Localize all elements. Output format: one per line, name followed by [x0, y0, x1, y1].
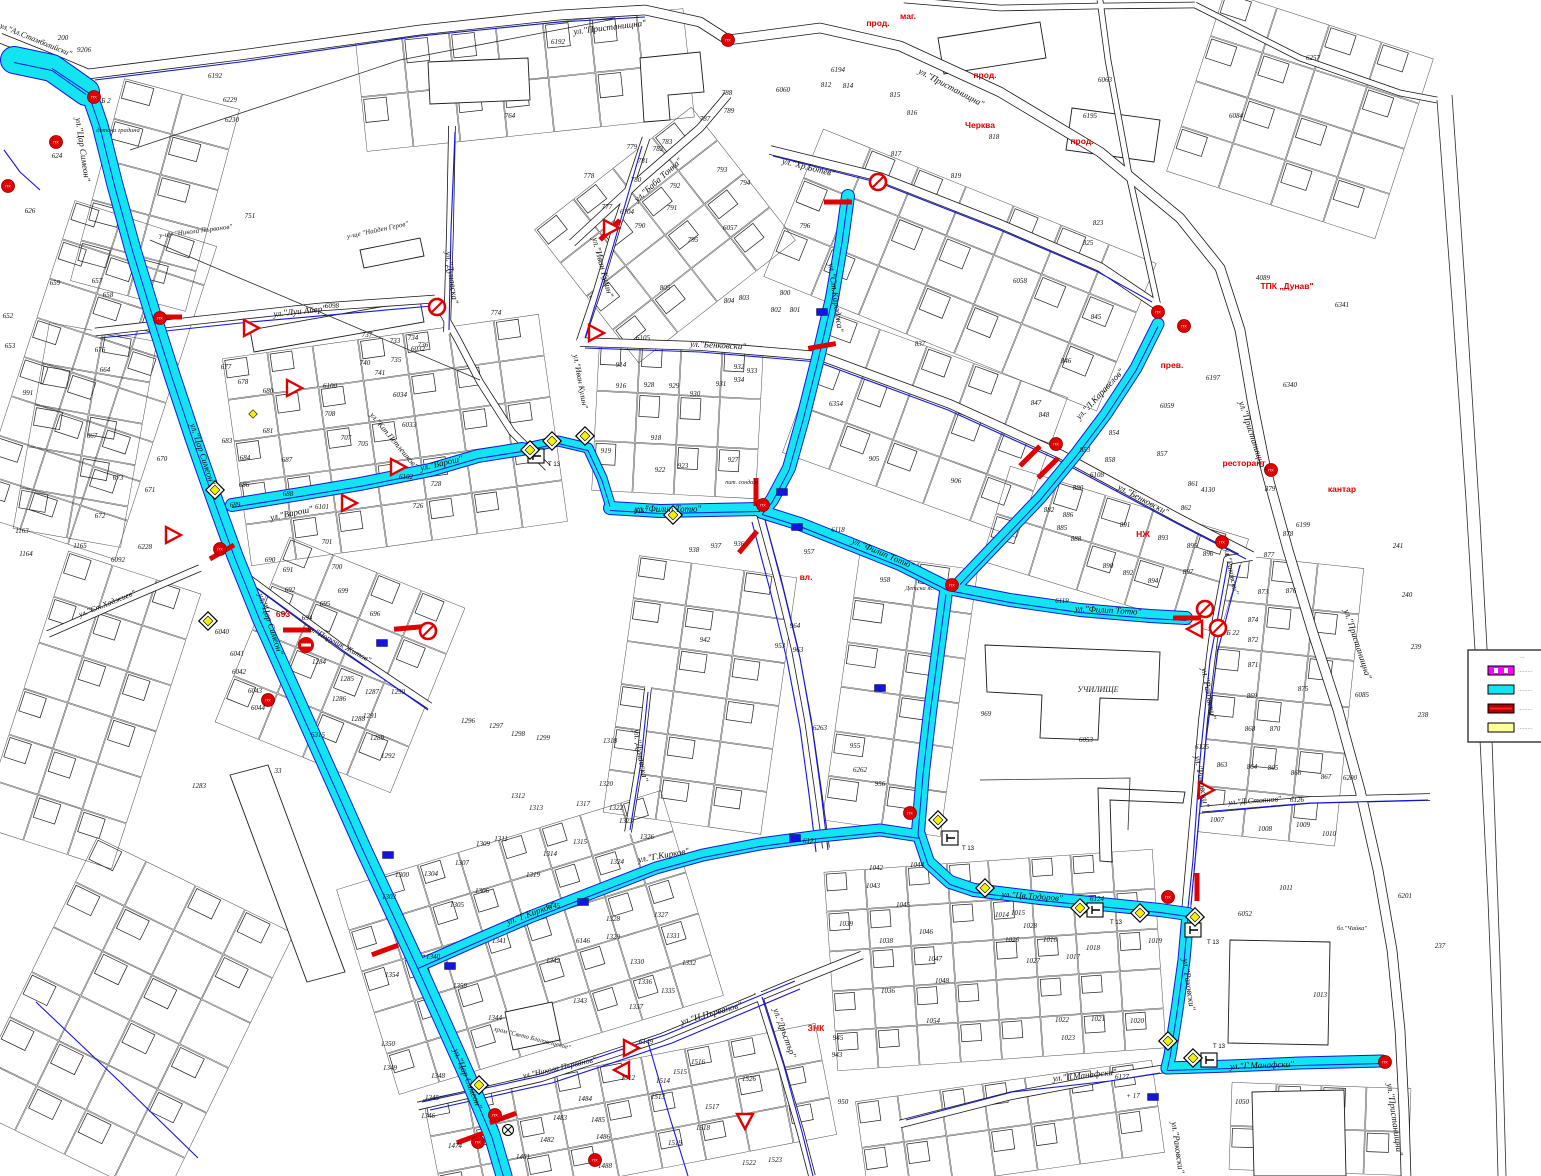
warning-triangle-icon[interactable] — [737, 1114, 753, 1129]
valve-bar-icon[interactable] — [824, 200, 852, 205]
parcel-number: 934 — [734, 376, 745, 384]
parcel-number: 1027 — [1026, 957, 1041, 965]
pipe-junction-box-icon[interactable] — [790, 835, 801, 842]
parcel-number: 777 — [602, 203, 613, 211]
t13-label: Т 13 — [1207, 940, 1220, 946]
parcel-number: 882 — [1044, 506, 1055, 514]
building-outline — [360, 238, 424, 268]
parcel-number: 672 — [95, 512, 106, 520]
fitting-symbol-icon[interactable] — [1087, 903, 1103, 917]
building-footprint — [632, 601, 660, 623]
svg-text:ПХ: ПХ — [475, 1140, 481, 1145]
parcel-number: 848 — [1039, 411, 1050, 419]
parcel-number: 1516 — [691, 1058, 706, 1066]
parcel-number: 1164 — [19, 550, 33, 558]
parcel-lot — [83, 611, 141, 670]
parcel-number: 1345 — [425, 1094, 440, 1102]
building-footprint — [555, 864, 580, 887]
parcel-lot — [28, 405, 88, 455]
parcel-number: 1289 — [370, 734, 385, 742]
parcel-lot — [20, 447, 80, 497]
parcel-number: 6084 — [1229, 112, 1244, 120]
parcel-number: 690 — [265, 556, 276, 564]
no-entry-sign-icon[interactable] — [1197, 601, 1213, 617]
building-footprint — [726, 702, 754, 724]
building-footprint — [339, 511, 363, 532]
parcel-number: 735 — [391, 356, 402, 364]
parcel-lot — [855, 1096, 903, 1147]
parcel-lot — [87, 1066, 157, 1134]
fitting-symbol-icon[interactable] — [1185, 923, 1201, 937]
parcel-lot — [1002, 324, 1068, 391]
valve-bar-icon[interactable] — [371, 943, 399, 957]
parcel-number: 1326 — [640, 833, 655, 841]
building-footprint — [122, 674, 150, 700]
parcel-number: 857 — [1157, 450, 1168, 458]
parcel-number: 779 — [627, 143, 638, 151]
parcel-number: 796 — [800, 222, 811, 230]
building-footprint — [1081, 975, 1102, 993]
parcel-number: 6192 — [208, 72, 223, 80]
hydrant-icon[interactable]: ПХ — [904, 807, 917, 820]
building-footprint — [0, 438, 23, 462]
parcel-lot — [594, 391, 637, 442]
parcel-lot — [68, 657, 126, 716]
parcel-number: 932 — [734, 363, 745, 371]
parcel-number: 1043 — [866, 882, 881, 890]
parcel-number: 879 — [1265, 485, 1276, 493]
pipe-junction-box-icon[interactable] — [383, 852, 394, 859]
parcel-number: 801 — [790, 306, 801, 314]
parcel-lot — [709, 785, 767, 834]
hydrant-icon[interactable]: ПХ — [946, 579, 959, 592]
building-footprint — [593, 987, 618, 1010]
parcel-lot — [679, 141, 743, 204]
poi-label: у-ще "Никола Първанов" — [158, 223, 233, 240]
parcel-number: 653 — [5, 342, 16, 350]
no-entry-sign-icon[interactable] — [420, 623, 436, 639]
parcel-number: 964 — [790, 622, 801, 630]
building-footprint — [405, 37, 430, 62]
parcel-number: 781 — [638, 157, 649, 165]
parcel-number: 1038 — [879, 937, 894, 945]
building-footprint — [293, 517, 317, 538]
parcel-lot — [59, 997, 129, 1065]
pipe-junction-box-icon[interactable] — [1148, 1094, 1159, 1101]
hydrant-icon[interactable]: ПХ — [88, 91, 101, 104]
building-footprint — [907, 1141, 930, 1163]
valve-bar-icon[interactable] — [1195, 873, 1200, 901]
hydrant-icon[interactable]: ПХ — [50, 136, 63, 149]
svg-text:ПХ: ПХ — [1219, 540, 1225, 545]
parcel-number: 733 — [390, 337, 401, 345]
parcel-number: 1523 — [768, 1156, 783, 1164]
parcel-number: 1341 — [492, 937, 506, 945]
hydrant-icon[interactable]: ПХ — [154, 312, 167, 325]
building-outline — [985, 645, 1160, 740]
parcel-lot — [24, 643, 82, 702]
parcel-number: 1297 — [489, 722, 504, 730]
building-footprint — [1082, 297, 1113, 327]
parcel-number: Б 22 — [1226, 629, 1240, 637]
parcel-number: 678 — [238, 378, 249, 386]
parcel-lot — [382, 500, 432, 547]
pipe-junction-box-icon[interactable] — [445, 963, 456, 970]
parcel-lot — [313, 340, 363, 387]
parcel-lot — [279, 429, 329, 476]
parcel-lot — [989, 1125, 1037, 1176]
parcel-lot — [54, 703, 112, 762]
parcel-number: 1023 — [1061, 1034, 1076, 1042]
parcel-number: 818 — [989, 133, 1000, 141]
parcel-number: 751 — [245, 212, 256, 220]
parcel-number: 6121 — [803, 837, 817, 845]
parcel-number: 1014 — [995, 911, 1010, 919]
parcel-number: 1306 — [475, 887, 490, 895]
parcel-lot — [692, 1078, 742, 1123]
poi-label: детска градина — [96, 127, 140, 134]
building-footprint — [661, 780, 689, 802]
parcel-zone — [0, 838, 294, 1176]
parcel-number: 695 — [320, 600, 331, 608]
parcel-number: 1026 — [1005, 936, 1020, 944]
parcel-number: 1320 — [599, 780, 614, 788]
parcel-number: 782 — [653, 145, 664, 153]
parcel-lot — [158, 1045, 228, 1113]
parcel-number: 814 — [843, 82, 854, 90]
parcel-number: 6053 — [1079, 736, 1094, 744]
building-footprint — [429, 498, 453, 519]
parcel-number: 1048 — [935, 977, 950, 985]
parcel-number: 861 — [1188, 480, 1199, 488]
parcel-number: 791 — [667, 204, 678, 212]
hydrant-icon[interactable]: ПХ — [722, 34, 735, 47]
building-footprint — [878, 1029, 899, 1047]
parcel-lot — [1196, 36, 1262, 97]
parcel-lot — [652, 269, 716, 332]
parcel-lot — [830, 423, 893, 486]
parcel-number: 708 — [325, 410, 336, 418]
parcel-lot — [98, 718, 156, 777]
no-entry-sign-icon[interactable] — [1210, 620, 1226, 636]
parcel-number: 1313 — [529, 804, 544, 812]
fitting-symbol-icon[interactable] — [942, 831, 958, 845]
street-name-label: ул."Филип Тотю" — [634, 504, 702, 514]
water-pipe-line — [95, 17, 645, 80]
parcel-number: 6341 — [1335, 301, 1349, 309]
parcel-lot — [1167, 127, 1233, 188]
no-entry-filled-icon[interactable] — [298, 637, 314, 653]
parcel-number: 1054 — [926, 1017, 941, 1025]
parcel-number: 795 — [688, 236, 699, 244]
parcel-number: 1010 — [1322, 830, 1337, 838]
red-annotation: НЖ — [1136, 529, 1150, 539]
parcel-number: 805 — [660, 284, 671, 292]
building-footprint — [496, 319, 520, 340]
parcel-lot — [0, 1017, 58, 1085]
svg-text:ПХ: ПХ — [907, 811, 913, 816]
parcel-number: 880 — [1073, 484, 1084, 492]
water-pipe-line — [36, 1002, 198, 1158]
parcel-number: 1017 — [1066, 953, 1081, 961]
parcel-number: 1350 — [381, 1040, 396, 1048]
building-footprint — [1035, 277, 1066, 307]
parcel-number: 6101 — [315, 503, 329, 511]
parcel-number: 1016 — [1043, 936, 1058, 944]
road-surface — [1195, 5, 1437, 100]
parcel-number: 1287 — [365, 688, 380, 696]
parcel-number: 1354 — [385, 971, 400, 979]
building-footprint — [474, 492, 498, 513]
parcel-number: 919 — [601, 447, 612, 455]
parcel-lot — [1074, 1113, 1122, 1164]
building-footprint — [283, 540, 312, 568]
t13-label: Т 13 — [962, 846, 975, 852]
parcel-number: 1045 — [896, 901, 911, 909]
building-footprint — [1073, 855, 1094, 873]
hydrant-icon[interactable]: ПХ — [489, 1109, 502, 1122]
junction-diamond-icon[interactable] — [929, 811, 947, 829]
survey-point-icon[interactable] — [503, 1125, 514, 1136]
svg-text:ПХ: ПХ — [217, 547, 223, 552]
parcel-number: 6194 — [831, 66, 846, 74]
no-entry-sign-icon[interactable] — [429, 299, 445, 315]
parcel-lot — [904, 1137, 952, 1176]
parcel-number: 1307 — [455, 859, 470, 867]
poi-label: Детска яс. — [904, 585, 935, 592]
small-node-icon[interactable] — [249, 410, 257, 418]
parcel-number: 945 — [833, 1034, 844, 1042]
building-footprint — [580, 946, 605, 969]
hydrant-icon[interactable]: ПХ — [757, 499, 770, 512]
parcel-number: 1330 — [630, 958, 645, 966]
parcel-number: 1008 — [1258, 825, 1273, 833]
parcel-lot — [633, 556, 691, 605]
parcel-number: 1028 — [1023, 922, 1038, 930]
pipe-junction-box-icon[interactable] — [875, 685, 886, 692]
no-entry-sign-icon[interactable] — [870, 174, 886, 190]
legend-chip — [1488, 723, 1514, 732]
building-footprint — [33, 321, 61, 345]
building-footprint — [639, 396, 660, 418]
parcel-number: 6340 — [1283, 381, 1298, 389]
pipe-junction-box-icon[interactable] — [777, 489, 788, 496]
parcel-lot — [1324, 178, 1390, 239]
parcel-number: 6098 — [325, 302, 340, 310]
parcel-number: 958 — [880, 576, 891, 584]
parcel-lot — [175, 886, 245, 954]
building-footprint — [1120, 932, 1141, 950]
parcel-number: 6033 — [402, 421, 417, 429]
legend-header: ··· — [1520, 655, 1525, 661]
hydrant-icon[interactable]: ПХ — [1162, 891, 1175, 904]
parcel-lot — [606, 885, 658, 937]
map-viewport[interactable]: ПХПХПХПХПХПХПХПХПХПХПХПХПХПХПХПХПХПХПХПХ… — [0, 0, 1541, 1176]
pipe-junction-box-icon[interactable] — [817, 309, 828, 316]
parcel-number: 802 — [771, 306, 782, 314]
parcel-number: 885 — [1057, 524, 1068, 532]
parcel-number: 6257 — [1306, 54, 1321, 62]
parcel-lot — [909, 904, 952, 946]
building-footprint — [55, 415, 83, 439]
parcel-lot — [656, 778, 714, 827]
street-name-label: ул."Пристанищна" — [1342, 607, 1374, 681]
parcel-number: 866 — [1291, 769, 1302, 777]
building-footprint — [1367, 1133, 1389, 1152]
parcel-number: 957 — [804, 548, 815, 556]
t13-label: Т 13 — [1213, 1044, 1226, 1050]
parcel-lot — [15, 1086, 85, 1154]
parcel-number: 1517 — [705, 1103, 720, 1111]
parcel-lot — [1314, 564, 1364, 614]
parcel-lot — [975, 256, 1041, 323]
building-footprint — [20, 360, 48, 384]
building-footprint — [1032, 858, 1053, 876]
parcel-lot — [953, 941, 996, 983]
svg-text:ПХ: ПХ — [492, 1113, 498, 1118]
building-footprint — [1002, 1021, 1023, 1039]
parcel-number: 6229 — [223, 96, 238, 104]
parcel-number: 878 — [1283, 530, 1294, 538]
hydrant-icon[interactable]: ПХ — [1379, 1056, 1392, 1069]
legend-chip — [1488, 666, 1514, 675]
building-footprint — [1034, 1123, 1057, 1145]
parcel-number: 626 — [25, 207, 36, 215]
parcel-lot — [356, 38, 408, 97]
hydrant-icon[interactable]: ПХ — [2, 180, 15, 193]
parcel-number: 6058 — [1013, 277, 1028, 285]
building-outline — [640, 52, 704, 122]
building-footprint — [1299, 752, 1323, 774]
parcel-number: 707 — [341, 434, 352, 442]
parcel-lot — [674, 445, 717, 496]
parcel-lot — [668, 692, 726, 741]
building-footprint — [1257, 700, 1281, 722]
parcel-number: 6118 — [831, 526, 845, 534]
parcel-lot — [721, 699, 779, 748]
parcel-lot — [612, 1132, 662, 1176]
parcel-number: 788 — [722, 89, 733, 97]
parcel-lot — [224, 910, 294, 978]
building-footprint — [958, 984, 979, 1002]
parcel-lot — [76, 838, 146, 906]
pipe-junction-box-icon[interactable] — [578, 899, 589, 906]
parcel-number: 804 — [724, 297, 735, 305]
parcel-lot — [718, 398, 761, 449]
building-footprint — [364, 97, 389, 122]
hydrant-icon[interactable]: ПХ — [1050, 438, 1063, 451]
parcel-number: 931 — [716, 380, 727, 388]
red-annotation: маг. — [900, 11, 916, 21]
parcel-number: 237 — [1435, 942, 1446, 950]
parcel-number: 930 — [690, 390, 701, 398]
parcel-number: 950 — [838, 1098, 849, 1106]
parcel-number: 664 — [100, 366, 111, 374]
parcel-number: 847 — [1031, 399, 1042, 407]
building-footprint — [542, 823, 567, 846]
building-footprint — [452, 33, 477, 58]
parcel-number: 1512 — [621, 1074, 636, 1082]
city-water-map[interactable]: ПХПХПХПХПХПХПХПХПХПХПХПХПХПХПХПХПХПХПХПХ… — [0, 0, 1541, 1176]
valve-bar-icon[interactable] — [1173, 616, 1201, 621]
parcel-number: 1526 — [742, 1075, 757, 1083]
parcel-number: 6059 — [1160, 402, 1175, 410]
parcel-number: 1336 — [638, 978, 653, 986]
parcel-number: 6063 — [1098, 76, 1113, 84]
parcel-number: 6200 — [1343, 774, 1358, 782]
parcel-number: 892 — [1123, 569, 1134, 577]
building-footprint — [1176, 129, 1207, 156]
warning-triangle-icon[interactable] — [287, 380, 302, 396]
parcel-number: 1311 — [494, 835, 507, 843]
red-annotation: 693 — [276, 609, 290, 619]
pipe-junction-box-icon[interactable] — [377, 640, 388, 647]
parcel-lot — [125, 862, 195, 930]
parcel-number: 816 — [907, 109, 918, 117]
parcel-number: 867 — [1321, 773, 1332, 781]
parcel-number: 938 — [689, 546, 700, 554]
red-annotation: ресторант — [1223, 458, 1266, 468]
parcel-lot — [215, 676, 276, 739]
parcel-number: 6092 — [111, 556, 126, 564]
warning-triangle-icon[interactable] — [166, 527, 181, 543]
hydrant-icon[interactable]: ПХ — [1178, 320, 1191, 333]
hydrant-icon[interactable]: ПХ — [1152, 306, 1165, 319]
parcel-number: 953 — [775, 642, 786, 650]
parcel-lot — [83, 764, 141, 823]
svg-text:ПХ: ПХ — [265, 698, 271, 703]
parcel-number: 686 — [239, 481, 250, 489]
parcel-number: 671 — [145, 486, 156, 494]
cyan-street — [232, 449, 522, 505]
parcel-lot — [715, 742, 773, 791]
parcel-number: 874 — [1248, 616, 1259, 624]
parcel-number: 1044 — [910, 861, 925, 869]
parcel-lot — [1286, 116, 1352, 177]
parcel-number: 6201 — [1398, 892, 1412, 900]
parcel-number: 873 — [1258, 588, 1269, 596]
parcel-lot — [562, 1103, 612, 1148]
parcel-number: 894 — [1148, 577, 1159, 585]
hydrant-icon[interactable]: ПХ — [472, 1136, 485, 1149]
parcel-lot — [403, 591, 464, 654]
parcel-number: 6315 — [311, 731, 326, 739]
building-footprint — [826, 873, 847, 891]
parcel-lot — [0, 1062, 36, 1130]
hydrant-icon[interactable]: ПХ — [214, 543, 227, 556]
parcel-number: 6119 — [1055, 597, 1069, 605]
parcel-lot — [955, 305, 1021, 372]
parcel-number: 657 — [92, 277, 103, 285]
building-footprint — [649, 880, 674, 903]
parcel-number: 1318 — [603, 737, 618, 745]
parcel-number: 6192 — [551, 38, 566, 46]
pipe-junction-box-icon[interactable] — [792, 524, 803, 531]
street-name-label: ул."Цар Симеон" — [73, 116, 92, 182]
parcel-number: 240 — [1402, 591, 1413, 599]
svg-text:ПХ: ПХ — [725, 38, 731, 43]
parcel-number: 1486 — [596, 1133, 611, 1141]
parcel-number: 6034 — [393, 391, 408, 399]
parcel-lot — [81, 952, 151, 1020]
fitting-symbol-icon[interactable] — [1201, 1053, 1217, 1067]
parcel-number: 1009 — [1296, 821, 1311, 829]
parcel-number: 774 — [491, 309, 502, 317]
hydrant-icon[interactable]: ПХ — [1216, 536, 1229, 549]
parcel-number: 956 — [875, 780, 886, 788]
parcel-number: 1344 — [488, 1014, 503, 1022]
parcel-lot — [829, 732, 894, 784]
